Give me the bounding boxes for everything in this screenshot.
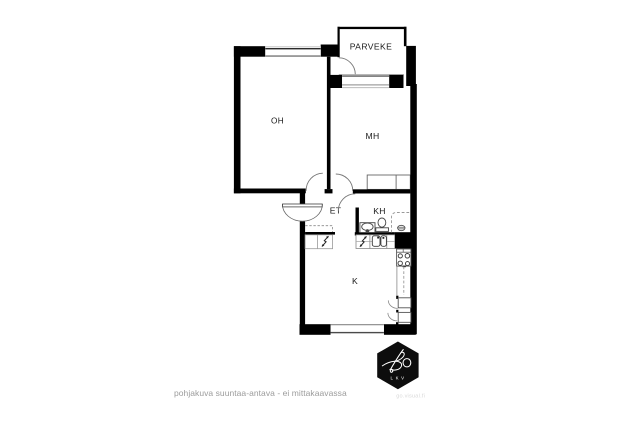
svg-text:PARVEKE: PARVEKE <box>350 41 393 51</box>
svg-text:OH: OH <box>271 117 284 126</box>
svg-text:ET: ET <box>330 206 342 216</box>
svg-text:pohjakuva suuntaa-antava - ei: pohjakuva suuntaa-antava - ei mittakaava… <box>174 388 347 398</box>
svg-text:KH: KH <box>373 206 386 216</box>
svg-text:K: K <box>352 276 358 286</box>
svg-text:go.visual.fi: go.visual.fi <box>396 393 425 399</box>
svg-text:MH: MH <box>366 131 380 141</box>
svg-text:LKV: LKV <box>391 375 407 380</box>
